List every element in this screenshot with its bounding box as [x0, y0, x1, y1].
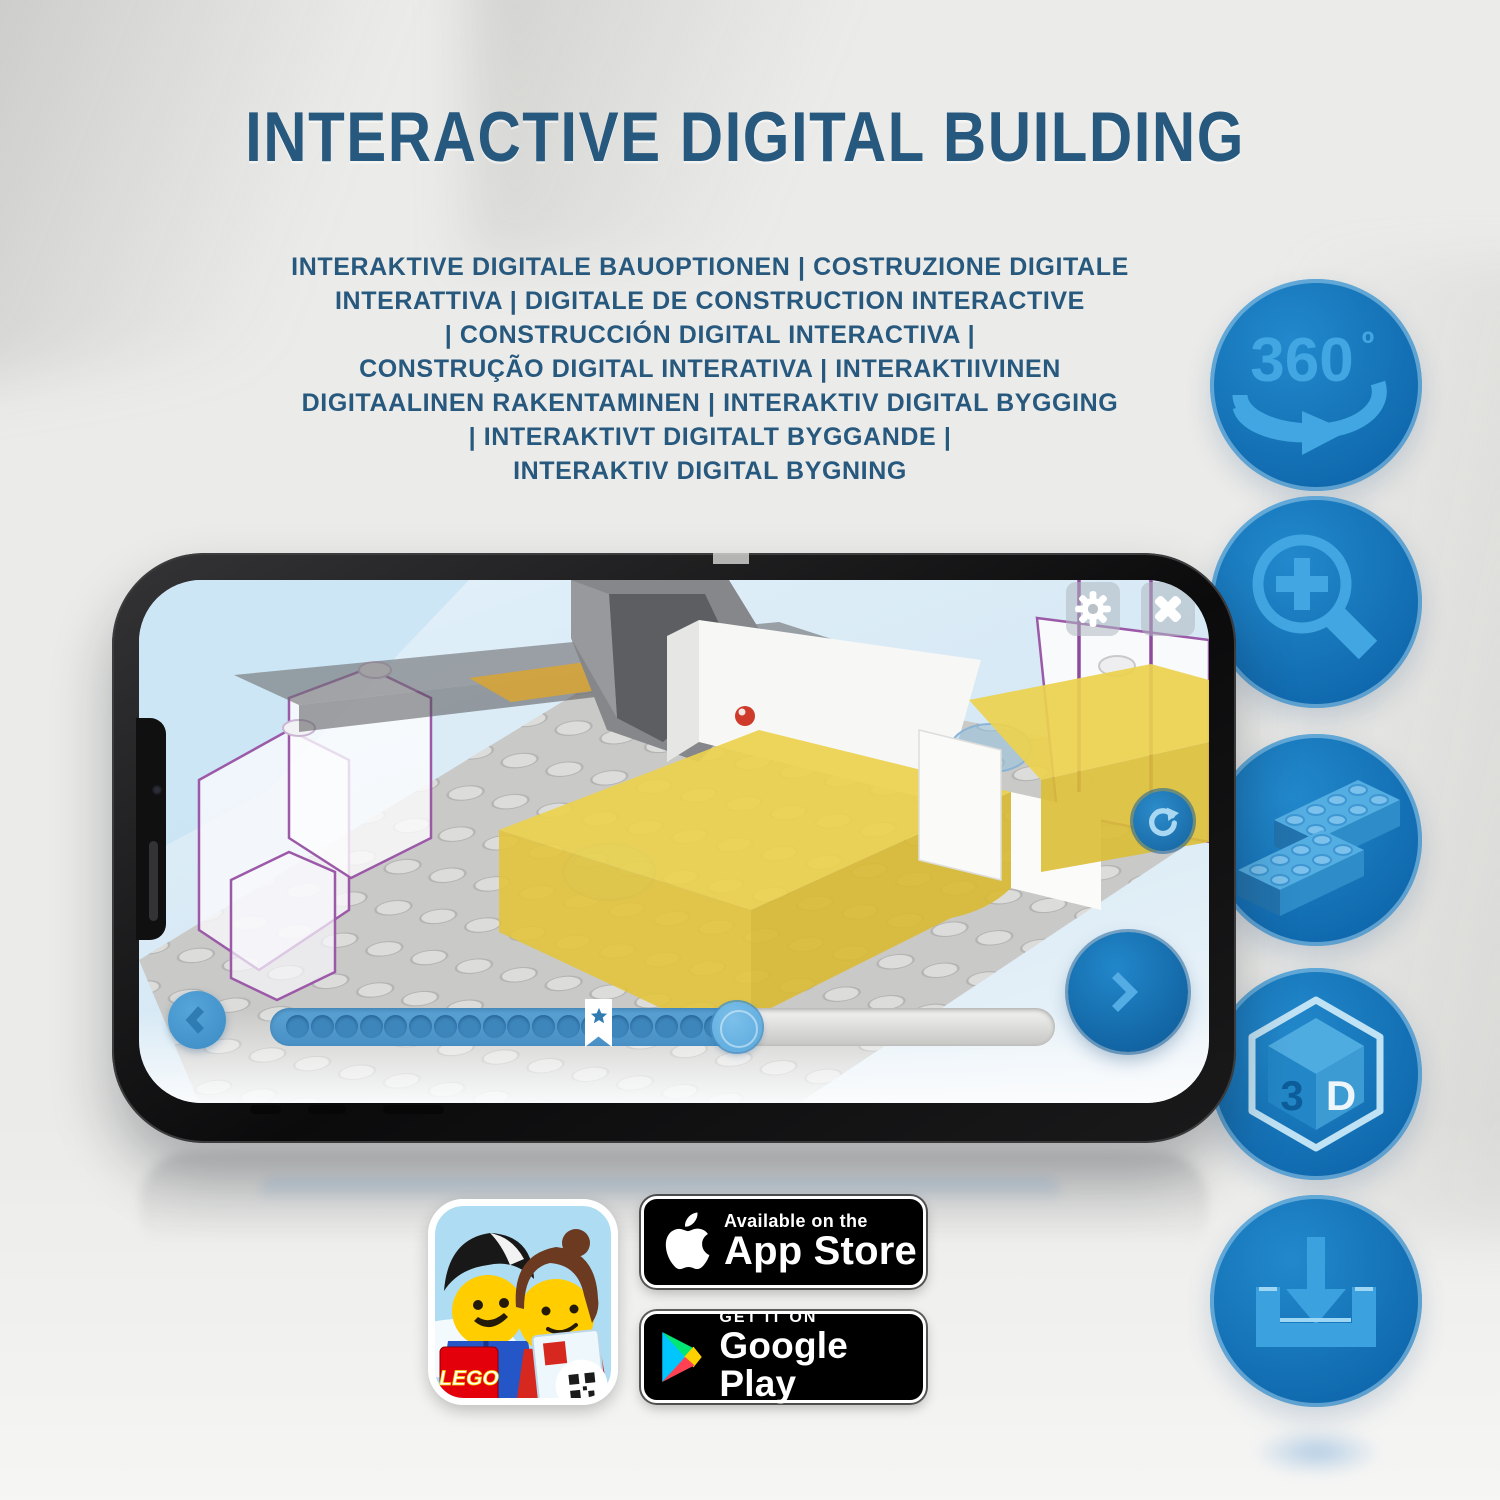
lego-app-icon[interactable]: LEGO [428, 1199, 618, 1405]
feature-bricks [1210, 734, 1422, 946]
refresh-rotate-button[interactable] [1133, 791, 1193, 851]
feature-3d-view: 3 D [1210, 968, 1422, 1180]
build-progress-slider[interactable] [270, 1008, 1055, 1046]
refresh-icon [1143, 801, 1183, 841]
subtitle-line: | INTERAKTIVT DIGITALT BYGGANDE | [0, 420, 1420, 454]
progress-dot [630, 1015, 653, 1038]
google-play-title: Google Play [719, 1327, 923, 1405]
subtitle-line: INTERAKTIVE DIGITALE BAUOPTIONEN | COSTR… [0, 250, 1420, 284]
icon-reflection [1252, 1428, 1382, 1476]
progress-dot [384, 1015, 407, 1038]
bottom-port [383, 1105, 444, 1114]
progress-dot [311, 1015, 334, 1038]
progress-dot [532, 1015, 555, 1038]
progress-dot [680, 1015, 703, 1038]
app-store-tagline: Available on the [724, 1212, 917, 1231]
previous-step-button[interactable] [168, 991, 226, 1049]
download-icon [1210, 1195, 1422, 1407]
lego-bricks-icon [1210, 734, 1422, 946]
subtitle-block: INTERAKTIVE DIGITALE BAUOPTIONEN | COSTR… [0, 250, 1420, 488]
chevron-right-icon [1100, 964, 1156, 1020]
bottom-port [250, 1105, 281, 1114]
bottom-port [308, 1105, 346, 1114]
3d-cube-icon: 3 D [1210, 968, 1422, 1180]
progress-dot [458, 1015, 481, 1038]
slider-handle[interactable] [712, 1002, 762, 1052]
progress-dot [409, 1015, 432, 1038]
close-button[interactable] [1141, 582, 1195, 636]
gear-icon [1070, 586, 1116, 632]
lego-app-artwork: LEGO [428, 1199, 618, 1405]
progress-dot [483, 1015, 506, 1038]
page-title: INTERACTIVE DIGITAL BUILDING [0, 96, 1490, 177]
google-play-logo-icon [644, 1331, 719, 1383]
app-store-badge[interactable]: Available on the App Store [641, 1196, 926, 1288]
svg-text:º: º [1362, 325, 1374, 363]
front-camera [152, 785, 162, 795]
magnifier-plus-icon [1210, 496, 1422, 708]
progress-dot [335, 1015, 358, 1038]
feature-360-rotation: 360 º [1210, 279, 1422, 491]
progress-dot [286, 1015, 309, 1038]
progress-dot [434, 1015, 457, 1038]
close-icon [1146, 587, 1190, 631]
star-icon [590, 1007, 608, 1025]
settings-button[interactable] [1066, 582, 1120, 636]
svg-text:360: 360 [1250, 326, 1353, 395]
progress-dot [655, 1015, 678, 1038]
svg-text:3: 3 [1280, 1072, 1303, 1119]
svg-text:LEGO: LEGO [439, 1367, 499, 1390]
apple-logo-icon [644, 1212, 724, 1272]
360-rotation-icon: 360 º [1210, 279, 1422, 491]
phone-screen [139, 580, 1209, 1103]
subtitle-line: | CONSTRUCCIÓN DIGITAL INTERACTIVA | [0, 318, 1420, 352]
subtitle-line: CONSTRUÇÃO DIGITAL INTERATIVA | INTERAKT… [0, 352, 1420, 386]
progress-dot [557, 1015, 580, 1038]
next-step-button[interactable] [1068, 932, 1188, 1052]
chevron-left-icon [182, 1005, 212, 1035]
subtitle-line: INTERAKTIV DIGITAL BYGNING [0, 454, 1420, 488]
feature-download [1210, 1195, 1422, 1407]
subtitle-line: INTERATTIVA | DIGITALE DE CONSTRUCTION I… [0, 284, 1420, 318]
subtitle-line: DIGITAALINEN RAKENTAMINEN | INTERAKTIV D… [0, 386, 1420, 420]
progress-dot [507, 1015, 530, 1038]
app-store-title: App Store [724, 1230, 917, 1272]
feature-zoom-in [1210, 496, 1422, 708]
earpiece-speaker [149, 841, 158, 921]
google-play-badge[interactable]: GET IT ON Google Play [641, 1311, 926, 1403]
progress-fill [270, 1008, 762, 1046]
svg-text:D: D [1326, 1072, 1356, 1119]
progress-dot [360, 1015, 383, 1038]
antenna-band [713, 553, 749, 564]
phone-mockup [112, 553, 1236, 1143]
